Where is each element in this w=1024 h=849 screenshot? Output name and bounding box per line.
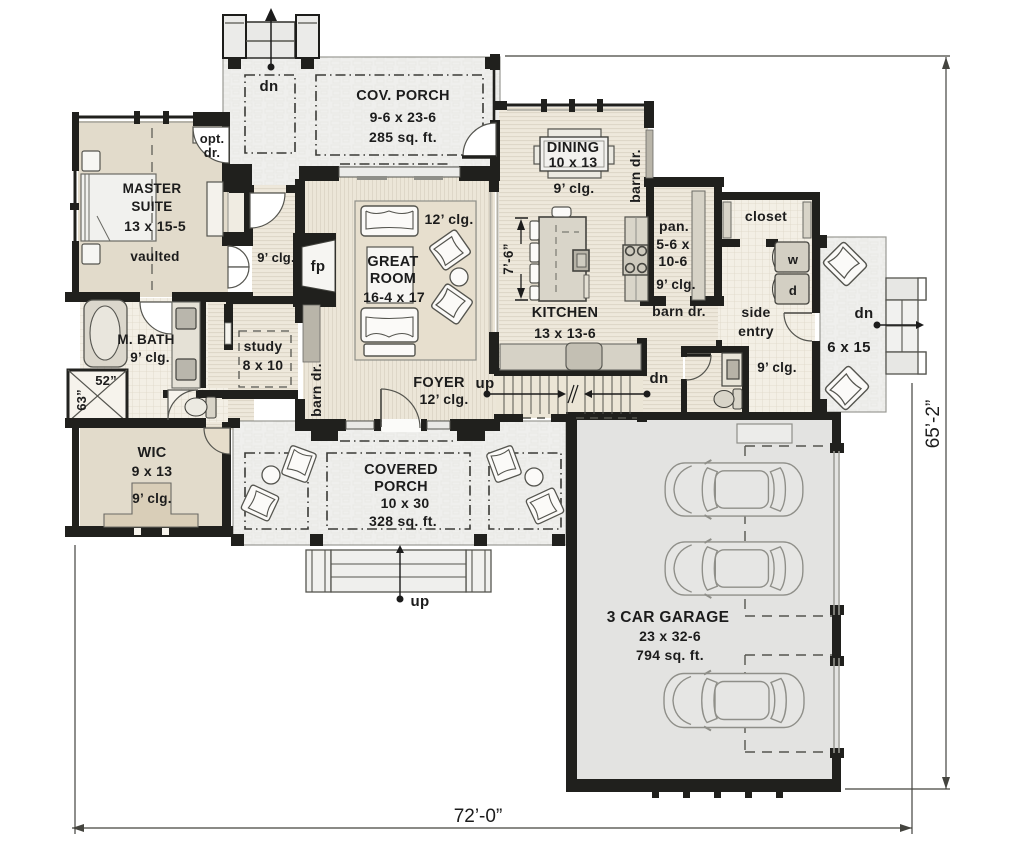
svg-text:pan.: pan. [659, 218, 689, 234]
svg-text:7’-6”: 7’-6” [501, 243, 516, 275]
svg-text:dr.: dr. [204, 145, 221, 160]
svg-text:w: w [787, 252, 799, 267]
svg-text:COVERED: COVERED [364, 462, 438, 478]
svg-text:10 x 13: 10 x 13 [549, 154, 598, 170]
svg-text:closet: closet [745, 208, 787, 224]
svg-text:fp: fp [311, 258, 326, 275]
svg-text:dn: dn [855, 305, 874, 322]
svg-text:794 sq. ft.: 794 sq. ft. [636, 647, 704, 663]
svg-text:9’ clg.: 9’ clg. [132, 491, 172, 506]
svg-text:65’-2”: 65’-2” [923, 400, 944, 449]
svg-text:entry: entry [738, 323, 774, 339]
svg-text:10 x 30: 10 x 30 [381, 495, 430, 511]
svg-text:9-6 x 23-6: 9-6 x 23-6 [370, 109, 437, 125]
svg-text:opt.: opt. [200, 131, 225, 146]
svg-text:WIC: WIC [137, 445, 166, 461]
svg-text:dn: dn [650, 370, 669, 387]
svg-text:72’-0”: 72’-0” [454, 806, 503, 827]
svg-text:up: up [411, 593, 430, 610]
svg-text:9’ clg.: 9’ clg. [757, 360, 797, 375]
svg-text:13 x 13-6: 13 x 13-6 [534, 325, 596, 341]
svg-text:PORCH: PORCH [374, 479, 428, 495]
svg-text:vaulted: vaulted [130, 249, 179, 264]
svg-text:9’ clg.: 9’ clg. [553, 180, 594, 196]
svg-text:12’ clg.: 12’ clg. [419, 391, 468, 407]
svg-text:10-6: 10-6 [658, 253, 687, 269]
svg-text:63”: 63” [74, 389, 89, 411]
svg-text:16-4 x 17: 16-4 x 17 [363, 289, 425, 305]
svg-text:ROOM: ROOM [370, 271, 416, 287]
svg-text:9 x 13: 9 x 13 [132, 463, 173, 479]
svg-text:up: up [476, 375, 495, 392]
svg-text:side: side [741, 304, 770, 320]
svg-text:MASTER: MASTER [123, 181, 182, 196]
svg-text:6 x 15: 6 x 15 [827, 339, 871, 356]
svg-text:dn: dn [260, 78, 279, 95]
svg-text:52”: 52” [95, 373, 117, 388]
svg-text:3 CAR GARAGE: 3 CAR GARAGE [607, 609, 729, 626]
svg-text:5-6 x: 5-6 x [656, 236, 689, 252]
svg-text:9’ clg.: 9’ clg. [257, 250, 295, 265]
svg-text:M. BATH: M. BATH [117, 332, 174, 347]
svg-text:328 sq. ft.: 328 sq. ft. [369, 513, 437, 529]
svg-text:13 x 15-5: 13 x 15-5 [124, 218, 186, 234]
svg-text:9’ clg.: 9’ clg. [656, 277, 696, 292]
svg-text:study: study [244, 338, 283, 354]
svg-text:23 x 32-6: 23 x 32-6 [639, 628, 701, 644]
svg-text:barn dr.: barn dr. [627, 149, 643, 203]
svg-text:8 x 10: 8 x 10 [243, 357, 284, 373]
svg-text:285 sq. ft.: 285 sq. ft. [369, 129, 437, 145]
svg-text:KITCHEN: KITCHEN [532, 305, 599, 321]
svg-text:GREAT: GREAT [367, 254, 418, 270]
svg-text:SUITE: SUITE [131, 199, 172, 214]
svg-text:barn dr.: barn dr. [652, 303, 706, 319]
svg-text:barn dr.: barn dr. [308, 363, 324, 417]
svg-text:FOYER: FOYER [413, 375, 465, 391]
svg-text:COV. PORCH: COV. PORCH [356, 88, 450, 104]
svg-text:12’ clg.: 12’ clg. [424, 211, 473, 227]
svg-text:9’ clg.: 9’ clg. [130, 350, 170, 365]
svg-text:d: d [789, 283, 797, 298]
